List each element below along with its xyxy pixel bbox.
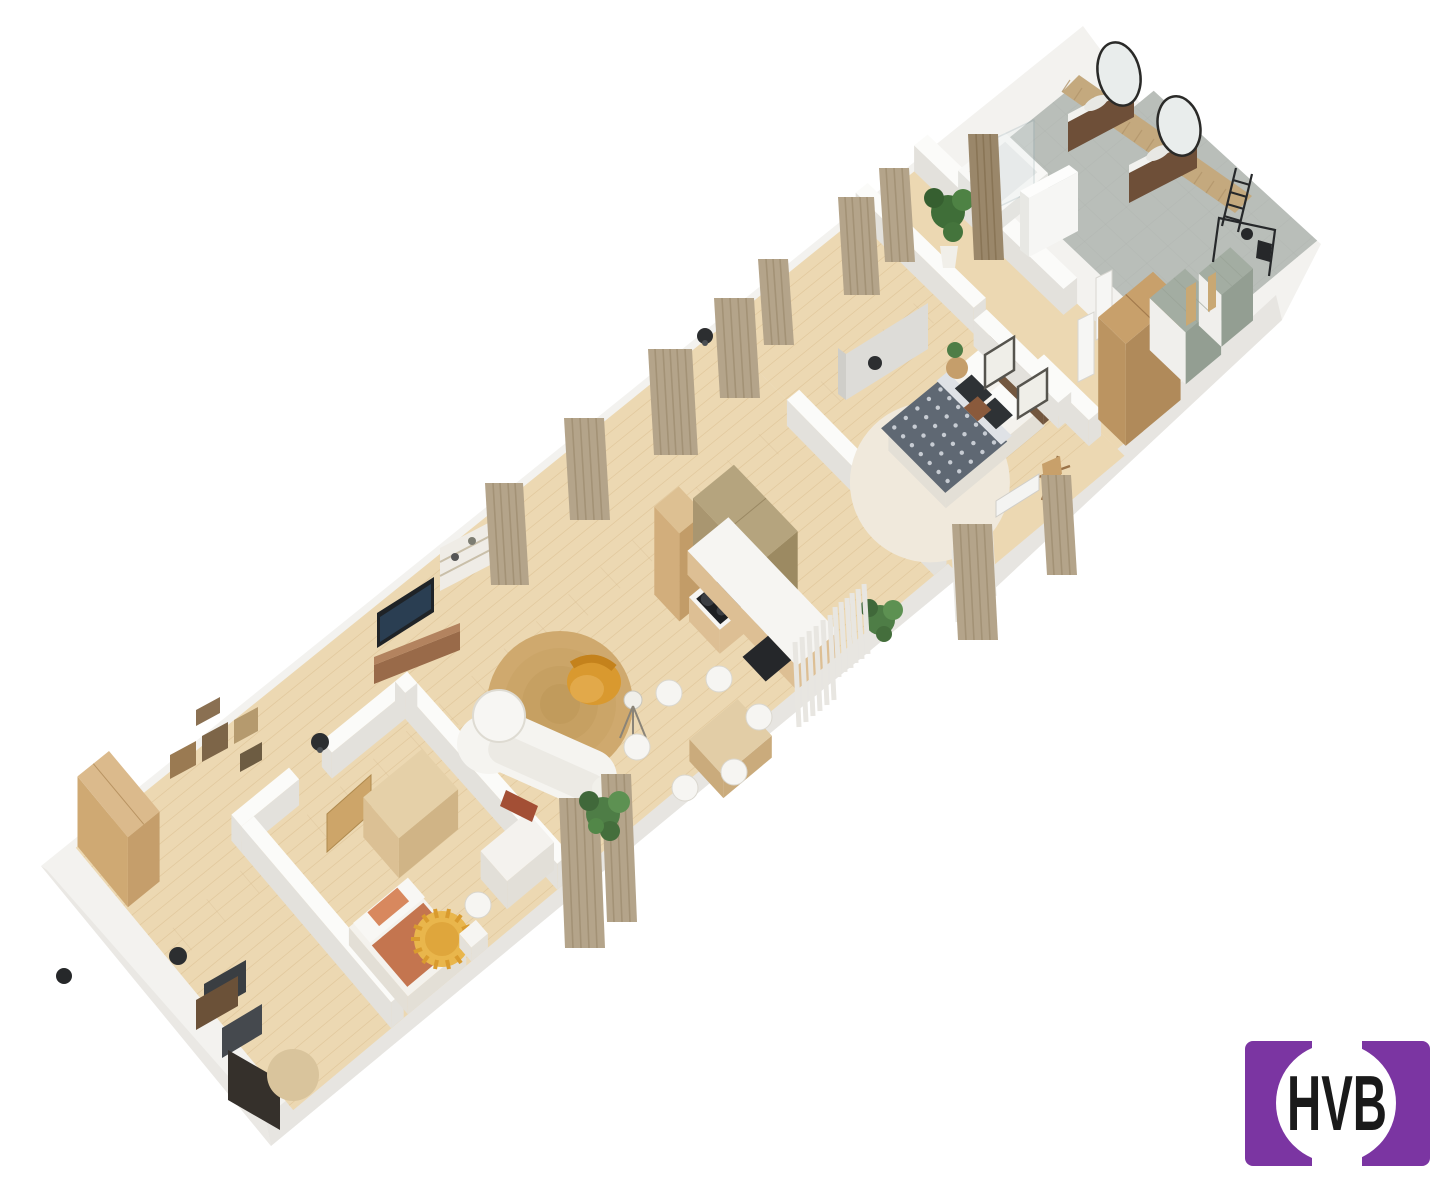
svg-text:HVB: HVB bbox=[1287, 1059, 1387, 1147]
